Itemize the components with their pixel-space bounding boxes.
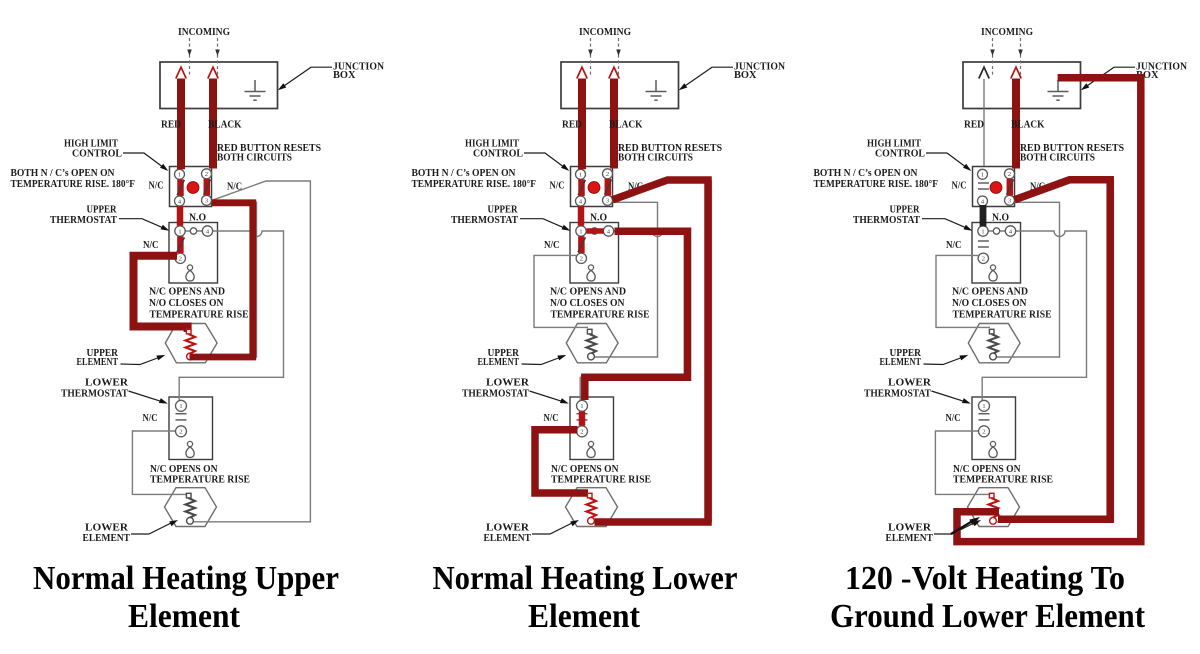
svg-text:RED: RED (161, 118, 181, 130)
svg-text:120 -Volt Heating To: 120 -Volt Heating To (845, 560, 1125, 597)
svg-text:Element: Element (128, 598, 241, 635)
svg-text:RED: RED (964, 118, 984, 130)
svg-text:RED: RED (562, 118, 582, 130)
svg-text:Normal Heating Lower: Normal Heating Lower (433, 560, 738, 597)
svg-text:BLACK: BLACK (1011, 118, 1045, 130)
svg-text:Normal Heating Upper: Normal Heating Upper (33, 560, 339, 597)
svg-text:Ground Lower Element: Ground Lower Element (830, 598, 1146, 635)
svg-text:BLACK: BLACK (208, 118, 242, 130)
svg-text:BLACK: BLACK (609, 118, 643, 130)
svg-text:Element: Element (528, 598, 641, 635)
